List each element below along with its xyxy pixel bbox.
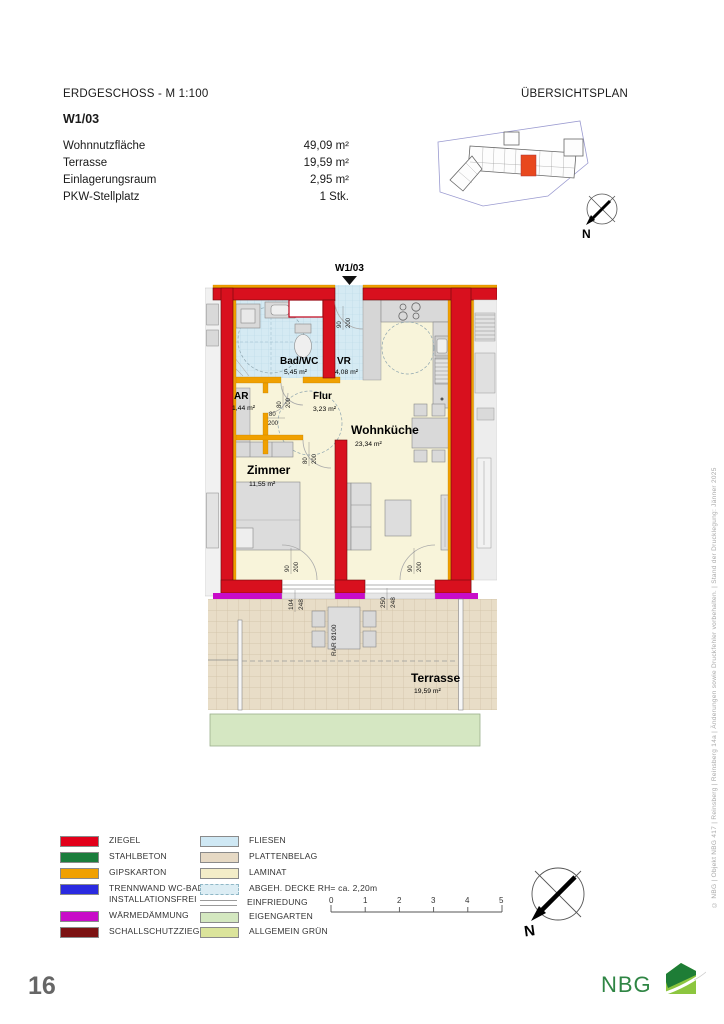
legend-swatch	[200, 912, 239, 923]
washing-machine-icon	[236, 304, 260, 328]
nbg-logo: NBG	[601, 960, 706, 1000]
legend-swatch-fence	[200, 900, 237, 906]
room-area: 23,34 m²	[355, 441, 383, 448]
insulation-strip	[213, 593, 478, 599]
toilet-icon	[295, 324, 312, 358]
svg-text:90: 90	[408, 565, 414, 572]
plan-unit-label: W1/03	[335, 263, 364, 274]
legend-swatch	[200, 884, 239, 895]
legend-swatch	[200, 852, 239, 863]
room-label: Wohnküche	[351, 423, 419, 437]
legend-swatch	[60, 852, 99, 863]
legend-label: STAHLBETON	[109, 851, 167, 862]
wardrobe-icon	[228, 442, 293, 457]
compass-north-label: N	[523, 922, 536, 940]
svg-text:1: 1	[363, 896, 368, 905]
room-area: 1,44 m²	[232, 405, 256, 412]
legend-swatch	[60, 927, 99, 938]
room-label: Flur	[313, 391, 332, 402]
legend-label: ABGEH. DECKE RH= ca. 2,20m	[249, 883, 377, 894]
legend-label: ZIEGEL	[109, 835, 140, 846]
svg-text:80: 80	[277, 401, 283, 408]
svg-text:200: 200	[346, 317, 352, 328]
unit-stats: Wohnnutzfläche 49,09 m² Terrasse 19,59 m…	[63, 138, 349, 206]
overview-title: ÜBERSICHTSPLAN	[521, 88, 628, 100]
legend-label: PLATTENBELAG	[249, 851, 317, 862]
bed-icon	[227, 482, 300, 550]
svg-text:4: 4	[465, 896, 470, 905]
shaft-wall	[363, 300, 381, 380]
stat-label: Terrasse	[63, 155, 221, 172]
public-green-strip	[210, 714, 480, 746]
room-label: VR	[337, 356, 352, 367]
floorplan-page: ERDGESCHOSS - M 1:100 ÜBERSICHTSPLAN W1/…	[0, 0, 724, 1024]
svg-text:248: 248	[390, 597, 397, 608]
legend-swatch	[60, 911, 99, 922]
svg-text:RAR Ø100: RAR Ø100	[331, 624, 338, 656]
terrace-divider	[459, 599, 464, 710]
overview-compass: N	[580, 190, 624, 242]
svg-text:200: 200	[417, 561, 423, 572]
legend-label: EINFRIEDUNG	[247, 897, 308, 908]
overview-highlighted-unit	[521, 155, 536, 176]
legend-label: EIGENGARTEN	[249, 911, 313, 922]
nbg-logo-text: NBG	[601, 970, 652, 1000]
coffee-table-icon	[385, 500, 411, 536]
room-area: 5,45 m²	[284, 369, 308, 376]
svg-text:80: 80	[269, 412, 276, 418]
room-area: 3,23 m²	[313, 406, 337, 413]
svg-text:90: 90	[337, 321, 343, 328]
nbg-house-icon	[654, 960, 706, 1000]
stat-value: 49,09 m²	[221, 138, 349, 155]
room-label: Terrasse	[411, 671, 460, 685]
neighbour-unit-left	[205, 288, 221, 596]
svg-text:200: 200	[294, 561, 300, 572]
tv-board-icon	[441, 495, 449, 550]
svg-text:80: 80	[303, 457, 309, 464]
terrace-divider	[238, 620, 242, 710]
svg-text:0: 0	[329, 896, 334, 905]
neighbour-unit-right	[474, 300, 497, 580]
stat-label: Wohnnutzfläche	[63, 138, 221, 155]
svg-text:104: 104	[288, 599, 295, 610]
room-area: 11,55 m²	[249, 481, 276, 488]
legend-label: FLIESEN	[249, 835, 286, 846]
legend-swatch	[200, 868, 239, 879]
legend-swatch	[200, 927, 239, 938]
svg-text:200: 200	[312, 453, 318, 464]
room-label: AR	[234, 391, 249, 402]
svg-text:248: 248	[298, 599, 305, 610]
legend-label: GIPSKARTON	[109, 867, 166, 878]
svg-text:5: 5	[499, 896, 504, 905]
room-area: 4,08 m²	[335, 369, 359, 376]
stat-label: PKW-Stellplatz	[63, 189, 221, 206]
compass-north-label: N	[582, 227, 591, 241]
room-label: Zimmer	[247, 463, 291, 477]
legend-label: WÄRMEDÄMMUNG	[109, 910, 189, 921]
dim-drain: RAR Ø100	[331, 624, 338, 656]
page-number: 16	[28, 972, 56, 1001]
stat-value: 1 Stk.	[221, 189, 349, 206]
stat-value: 19,59 m²	[221, 155, 349, 172]
legend-swatch	[60, 868, 99, 879]
legend-swatch	[60, 836, 99, 847]
stat-label: Einlagerungsraum	[63, 172, 221, 189]
svg-text:2: 2	[397, 896, 402, 905]
stat-value: 2,95 m²	[221, 172, 349, 189]
scale-bar: 0 1 2 3 4 5	[328, 895, 508, 917]
plan-title: ERDGESCHOSS - M 1:100	[63, 88, 208, 100]
unit-number: W1/03	[63, 112, 99, 126]
room-label: Bad/WC	[280, 356, 318, 367]
legend-swatch	[60, 884, 99, 895]
main-compass: N	[518, 860, 598, 944]
legend-label: SCHALLSCHUTZZIEGEL	[109, 926, 210, 937]
legend-label: LAMINAT	[249, 867, 287, 878]
copyright-note: © NBG | Objekt NBG 417 | Reinsberg | Rei…	[711, 488, 718, 908]
entrance-arrow-icon	[342, 276, 357, 285]
legend-label: ALLGEMEIN GRÜN	[249, 926, 328, 937]
svg-text:3: 3	[431, 896, 436, 905]
floorplan-drawing: W1/03	[205, 258, 497, 750]
svg-text:200: 200	[286, 397, 292, 408]
svg-text:250: 250	[380, 597, 387, 608]
room-area: 19,59 m²	[414, 688, 442, 695]
installation-shaft	[289, 300, 323, 317]
svg-text:200: 200	[268, 421, 279, 427]
svg-text:90: 90	[285, 565, 291, 572]
legend-swatch	[200, 836, 239, 847]
